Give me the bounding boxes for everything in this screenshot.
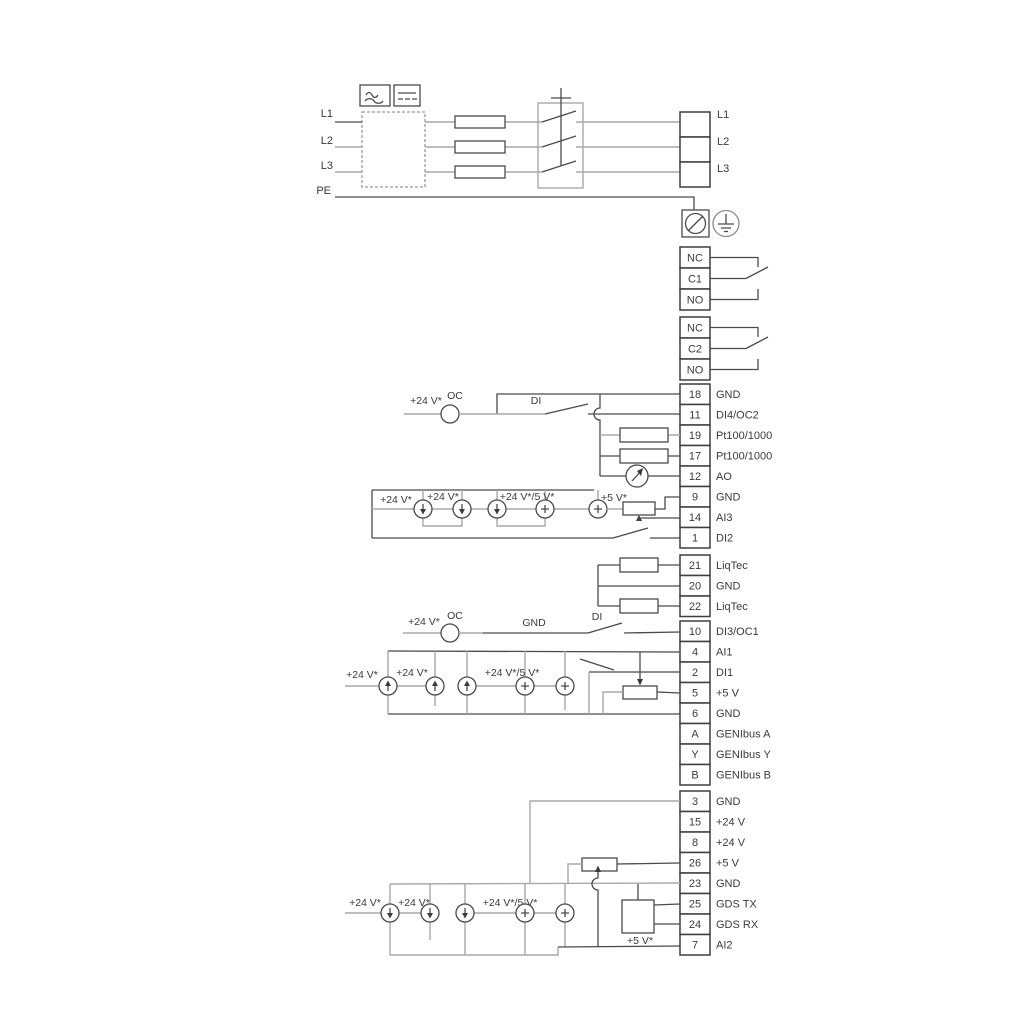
power-in-l2: L2 (321, 135, 333, 147)
terminal-20-num: 20 (689, 581, 701, 593)
terminal-26-label: +5 V (716, 858, 740, 870)
terminal-23-num: 23 (689, 878, 701, 890)
ai2-signal-wire (558, 946, 680, 947)
label-plus24-ai3-1: +24 V* (380, 494, 412, 506)
power-out-l1: L1 (717, 109, 729, 121)
switch-blade-l1 (542, 111, 576, 122)
label-plus24-di4: +24 V* (410, 395, 442, 407)
terminal-8-label: +24 V (716, 837, 746, 849)
power-terminal-block: L1 L2 L3 (680, 109, 729, 187)
label-plus24-5-ai1: +24 V*/5 V* (485, 667, 540, 679)
terminal-19-num: 19 (689, 430, 701, 442)
terminal-3-label: GND (716, 796, 741, 808)
terminal-17-label: Pt100/1000 (716, 451, 772, 463)
switch-blade-l2 (542, 136, 576, 147)
terminal-group-a: 18 11 19 17 12 9 14 1 GND DI4/OC2 Pt100/… (680, 384, 772, 548)
terminal-14-label: AI3 (716, 512, 733, 524)
relay2-no-wire (710, 359, 758, 370)
relay1-no-wire (710, 289, 758, 300)
terminal-3-num: 3 (692, 796, 698, 808)
power-in-pe: PE (316, 185, 331, 197)
potentiometer-ai3 (623, 502, 655, 515)
label-di-di4: DI (531, 395, 542, 407)
power-in-l3: L3 (321, 160, 333, 172)
terminal-12-num: 12 (689, 471, 701, 483)
terminal-9-label: GND (716, 492, 741, 504)
relay2-block: NC C2 NO (680, 317, 768, 380)
gnd-branch-vertical (594, 394, 600, 476)
terminal-20-label: GND (716, 581, 741, 593)
terminal-18-label: GND (716, 389, 741, 401)
terminal-11-num: 11 (689, 410, 700, 422)
terminal-Y-num: Y (691, 749, 699, 761)
terminal-L1 (680, 112, 710, 137)
label-di-di3: DI (592, 611, 603, 623)
terminal-24-label: GDS RX (716, 919, 759, 931)
relay2-nc-wire (710, 328, 758, 338)
terminal-8-num: 8 (692, 837, 698, 849)
terminal-B-num: B (691, 770, 698, 782)
terminal-15-num: 15 (689, 817, 701, 829)
terminal-14-num: 14 (689, 512, 701, 524)
main-switch (538, 88, 583, 188)
terminal-6-num: 6 (692, 708, 698, 720)
wire-pe (335, 197, 694, 210)
terminal-group-b: 21 20 22 LiqTec GND LiqTec (598, 555, 748, 617)
pt100-resistor-17 (620, 449, 668, 463)
di2-switch-wire (372, 528, 680, 538)
relay1-contact (710, 267, 768, 279)
pe-terminal-icon (682, 210, 709, 237)
switch-blade-l3 (542, 161, 576, 172)
label-oc-di4: OC (447, 390, 463, 402)
dc-symbol-box (394, 85, 420, 106)
ai1-circuit: +24 V* +24 V* +24 V*/5 V* (345, 651, 680, 714)
terminal-24-num: 24 (689, 919, 701, 931)
terminal-7-num: 7 (692, 940, 698, 952)
terminal-26-num: 26 (689, 858, 701, 870)
power-out-l3: L3 (717, 163, 729, 175)
terminal-L2 (680, 137, 710, 162)
potentiometer-ai1 (623, 686, 657, 699)
relay1-no-label: NO (687, 295, 704, 307)
terminal-L3 (680, 162, 710, 187)
terminal-12-label: AO (716, 471, 732, 483)
fuse-l3 (455, 166, 505, 178)
label-plus5-gds: +5 V* (627, 935, 653, 947)
ao-meter (600, 465, 680, 487)
oc-node-di3 (441, 624, 459, 642)
fuses (425, 116, 542, 178)
label-gnd-di3: GND (522, 617, 546, 629)
terminal-2-num: 2 (692, 667, 698, 679)
power-in-l1: L1 (321, 108, 333, 120)
terminal-group-c: 10 4 2 5 6 A Y B DI3/OC1 AI1 DI1 +5 V GN… (680, 621, 771, 785)
label-plus24-ai1-2: +24 V* (396, 667, 428, 679)
relay2-nc-label: NC (687, 323, 703, 335)
terminal-7-label: AI2 (716, 940, 733, 952)
wiring-diagram: L1 L2 L3 PE L (0, 0, 1024, 1024)
gnd18-wire (497, 394, 680, 414)
terminal-Y-label: GENIbus Y (716, 749, 771, 761)
relay2-contact (710, 337, 768, 349)
pt100-resistor-19 (620, 428, 668, 442)
terminal-22-num: 22 (689, 601, 701, 613)
terminal-22-label: LiqTec (716, 601, 748, 613)
terminal-B-label: GENIbus B (716, 770, 771, 782)
terminal-5-label: +5 V (716, 688, 740, 700)
label-plus24-ai3-2: +24 V* (427, 491, 459, 503)
ai3-circuit: +24 V* +24 V* +24 V*/5 V* +5 V* (372, 490, 680, 538)
di1-switch (580, 659, 680, 672)
terminal-group-d: 3 15 8 26 23 25 24 7 GND +24 V +24 V +5 … (680, 791, 759, 955)
terminal-25-num: 25 (689, 899, 701, 911)
label-plus24-ai2-1: +24 V* (349, 897, 381, 909)
terminal-2-label: DI1 (716, 667, 733, 679)
relay1-block: NC C1 NO (680, 247, 768, 310)
liqtec-resistor-22 (620, 599, 658, 613)
ai2-circuit: +24 V* +24 V* +24 V*/5 V* +5 V* (345, 801, 680, 955)
label-plus24-ai1-1: +24 V* (346, 669, 378, 681)
terminal-11-label: DI4/OC2 (716, 410, 759, 422)
di-switch-di4 (545, 404, 588, 414)
terminal-4-label: AI1 (716, 647, 733, 659)
terminal-9-num: 9 (692, 492, 698, 504)
terminal-10-label: DI3/OC1 (716, 626, 759, 638)
relay2-c2-label: C2 (688, 344, 702, 356)
relay1-nc-label: NC (687, 253, 703, 265)
terminal-A-num: A (691, 729, 699, 741)
earth-icon (713, 211, 739, 237)
relay1-nc-wire (710, 258, 758, 268)
filter-box (360, 85, 425, 187)
terminal-21-label: LiqTec (716, 560, 748, 572)
terminal-A-label: GENIbus A (716, 729, 771, 741)
pt100-sensors (600, 428, 680, 463)
terminal-17-num: 17 (689, 451, 701, 463)
terminal-5-num: 5 (692, 688, 698, 700)
fuse-l2 (455, 141, 505, 153)
terminal-23-label: GND (716, 878, 741, 890)
terminal-4-num: 4 (692, 647, 698, 659)
terminal-1-num: 1 (692, 533, 698, 545)
terminal-10-num: 10 (689, 626, 701, 638)
diagram-canvas: L1 L2 L3 PE L (0, 0, 1024, 1024)
terminal-19-label: Pt100/1000 (716, 430, 772, 442)
di3-oc1-circuit: +24 V* OC GND DI (403, 610, 680, 642)
terminal-18-num: 18 (689, 389, 701, 401)
power-out-l2: L2 (717, 136, 729, 148)
power-input-labels: L1 L2 L3 PE (316, 108, 333, 197)
label-oc-di3: OC (447, 610, 463, 622)
liqtec-resistor-21 (620, 558, 658, 572)
di-switch-di3 (588, 623, 680, 633)
fuse-l1 (455, 116, 505, 128)
gnd23-rail (390, 883, 680, 884)
relay2-no-label: NO (687, 365, 704, 377)
terminal-21-num: 21 (689, 560, 701, 572)
oc-node-di4 (441, 405, 459, 423)
terminal-15-label: +24 V (716, 817, 746, 829)
terminal-6-label: GND (716, 708, 741, 720)
relay1-c1-label: C1 (688, 274, 702, 286)
gds-sensor-box (622, 900, 654, 933)
terminal-25-label: GDS TX (716, 899, 757, 911)
label-plus24-di3: +24 V* (408, 616, 440, 628)
terminal-1-label: DI2 (716, 533, 733, 545)
